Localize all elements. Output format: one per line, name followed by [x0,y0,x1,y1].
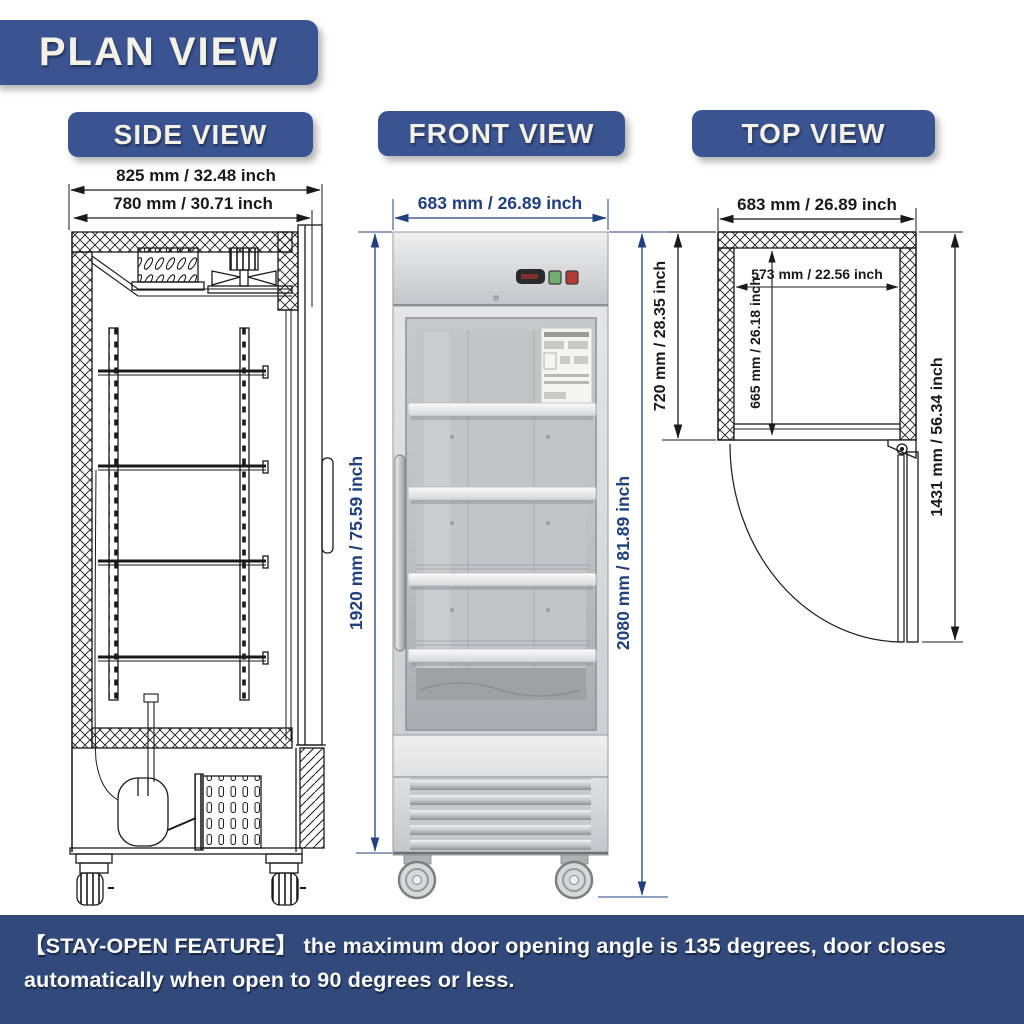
power-button-green [549,271,561,284]
top-dim-665-text: 665 mm / 26.18 inch [747,277,763,409]
side-view-drawing: 825 mm / 32.48 inch 780 mm / 30.71 inch [69,166,333,905]
top-view-label-text: TOP VIEW [742,118,886,150]
top-view-drawing: 683 mm / 26.89 inch 573 mm / 22.56 inch … [652,195,963,642]
page-title: PLAN VIEW [0,20,318,85]
front-view-label: FRONT VIEW [378,111,625,156]
side-condenser [168,774,261,850]
side-view-label-text: SIDE VIEW [114,119,268,151]
plan-view-sheet: 825 mm / 32.48 inch 780 mm / 30.71 inch [0,0,1024,1024]
front-door-handle [395,455,405,651]
light-button-red [566,271,578,284]
side-left-wall [72,252,92,748]
top-view-label: TOP VIEW [692,110,935,157]
top-dim-width: 683 mm / 26.89 inch [718,195,916,231]
top-door-closed-slab [734,424,900,440]
side-dim-825-text: 825 mm / 32.48 inch [116,166,276,185]
panel-screw [494,296,499,301]
top-dim-683-text: 683 mm / 26.89 inch [737,195,897,214]
side-door-handle [322,458,333,553]
temperature-display-digits [521,274,538,279]
front-dim-2080-text: 2080 mm / 81.89 inch [613,476,633,650]
side-evaporator [132,248,204,290]
front-louver-section [393,735,608,855]
front-dim-1920-text: 1920 mm / 75.59 inch [346,456,366,630]
page-title-text: PLAN VIEW [39,30,279,75]
side-door-bottom-louver [300,748,324,848]
top-dim-door-open: 1431 mm / 56.34 inch [919,232,963,642]
top-open-door [730,440,918,642]
side-cabinet-outline [70,232,302,854]
top-left-wall [718,248,734,440]
stay-open-feature-text: 【STAY-OPEN FEATURE】 the maximum door ope… [24,934,946,992]
side-floor-wall [92,728,292,748]
top-door-swing-arc [730,444,903,642]
top-dim-720-text: 720 mm / 28.35 inch [652,261,669,411]
front-view-label-text: FRONT VIEW [409,118,595,150]
side-door-profile [286,225,333,848]
front-top-panel [393,232,608,305]
top-right-wall [900,248,916,440]
top-dim-1431-text: 1431 mm / 56.34 inch [929,357,946,516]
side-right-wall-top [278,232,298,310]
front-view-photo: 683 mm / 26.89 inch 1920 mm / 75.59 inch… [346,193,670,898]
side-casters [76,854,306,905]
door-spec-sticker [541,328,592,404]
side-view-label: SIDE VIEW [68,112,313,157]
side-shelf-racks [109,328,249,700]
top-dim-depth: 720 mm / 28.35 inch [652,232,716,440]
stay-open-feature-note: 【STAY-OPEN FEATURE】 the maximum door ope… [0,915,1024,1024]
side-dim-780-text: 780 mm / 30.71 inch [113,194,273,213]
front-casters [399,855,592,898]
top-dim-573-text: 573 mm / 22.56 inch [751,266,883,282]
front-dim-683-text: 683 mm / 26.89 inch [418,193,582,213]
top-back-wall [718,232,916,248]
